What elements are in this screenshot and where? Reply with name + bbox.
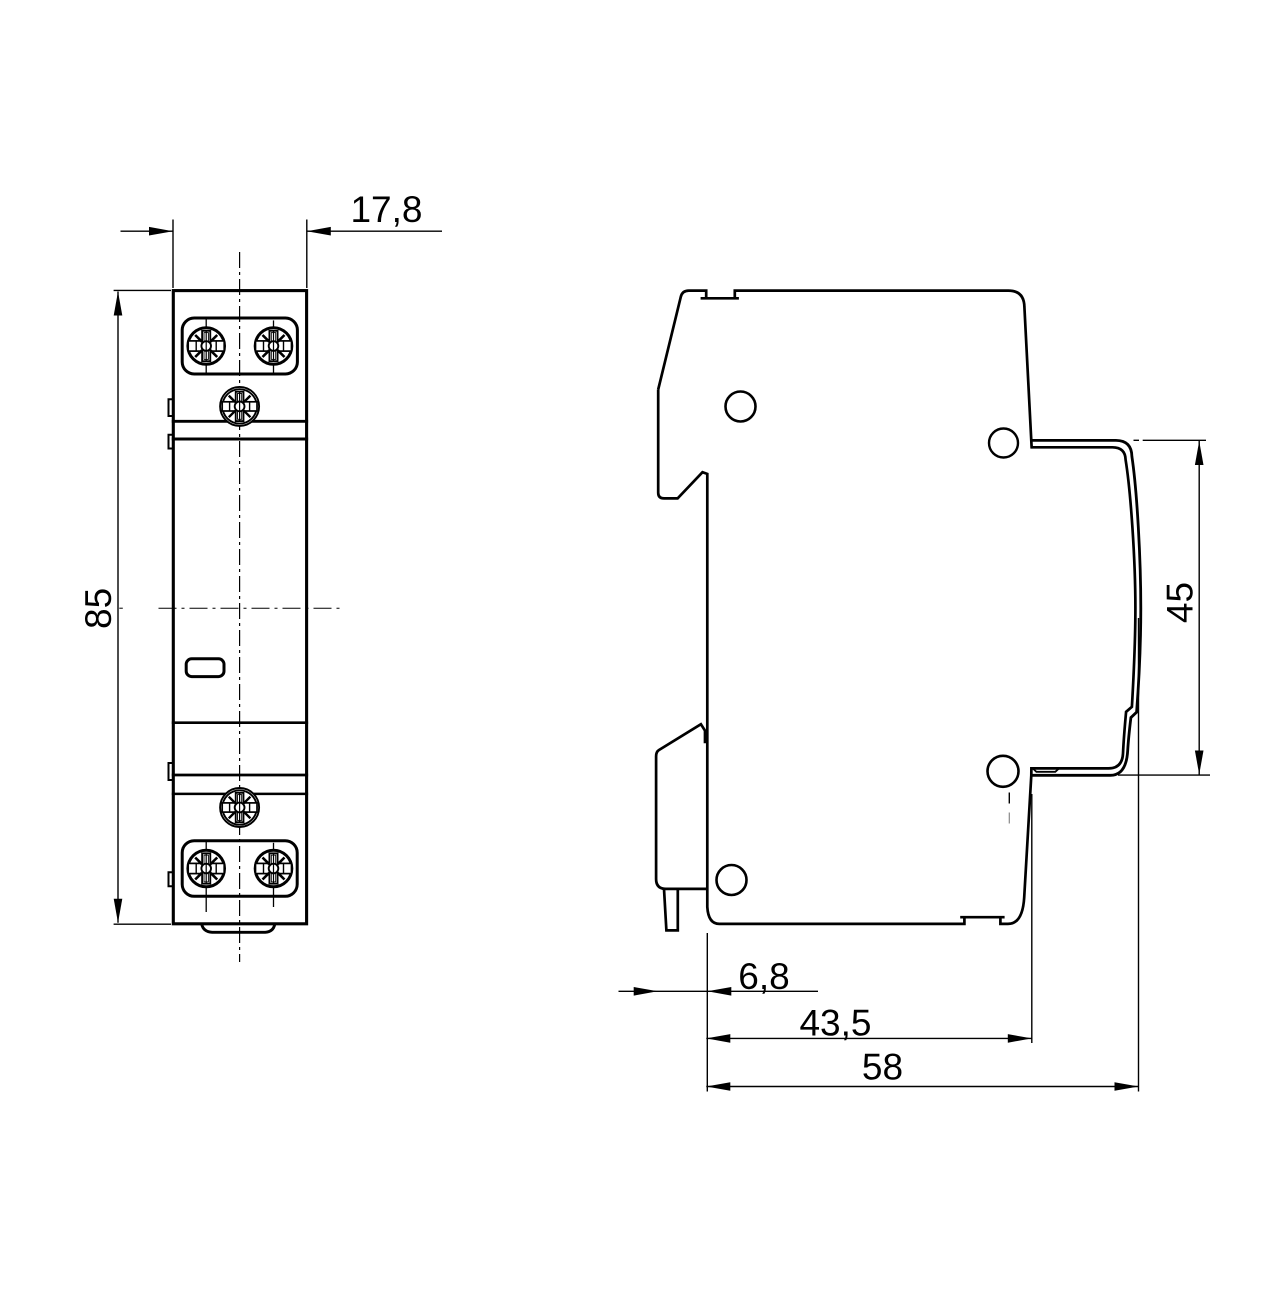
svg-text:17,8: 17,8 xyxy=(350,189,422,230)
svg-text:6,8: 6,8 xyxy=(738,956,789,997)
svg-text:43,5: 43,5 xyxy=(799,1003,871,1044)
svg-text:58: 58 xyxy=(862,1047,903,1088)
svg-text:45: 45 xyxy=(1160,582,1201,623)
svg-text:85: 85 xyxy=(78,588,119,629)
